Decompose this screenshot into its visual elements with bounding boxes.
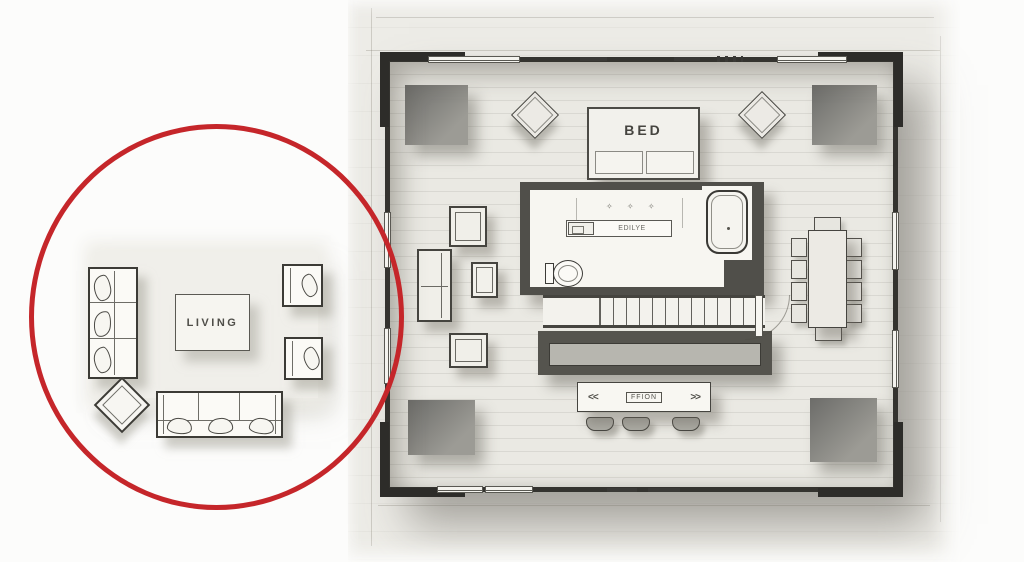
stairs [543, 295, 765, 328]
window-bottom-1 [437, 486, 483, 493]
dining-chair-bottom [815, 326, 842, 341]
toilet-bowl [553, 260, 583, 287]
plan-loveseat [417, 249, 452, 322]
long-sofa [538, 331, 772, 375]
island-arrow-right: >> [690, 392, 700, 403]
wall-bar-top-1 [580, 57, 607, 61]
guide-line-horizontal-top1 [376, 17, 934, 18]
dining-chair-left [791, 260, 807, 279]
wall-bar-bottom-2 [648, 488, 680, 492]
guide-line-vertical-right [940, 36, 941, 522]
bed-pillow [595, 151, 643, 174]
corner-wall-top-left [380, 52, 465, 127]
toilet [545, 260, 585, 287]
dining-chair-left [791, 238, 807, 257]
vanity-sparkles: ✧ ✧ ✧ [606, 202, 661, 211]
scene: BED ✧ ✧ ✧ EDILYE [0, 0, 1024, 562]
diamond-stool-left [511, 91, 559, 139]
wall-bar-top-2 [674, 57, 700, 61]
vanity-label: EDILYE [618, 225, 645, 232]
bathtub [706, 190, 748, 254]
guide-line-horizontal-bottom [378, 505, 930, 506]
bar-stool [586, 417, 614, 431]
dining-chair-left [791, 282, 807, 301]
dining-chair-right [846, 304, 862, 323]
corner-wall-bottom-right [818, 422, 903, 497]
window-top-1 [428, 56, 520, 63]
bathtub-alcove [702, 186, 752, 260]
wall-bar-bottom-1 [607, 488, 637, 492]
dining-chair-right [846, 238, 862, 257]
red-highlight-circle [29, 124, 404, 510]
door-leaf [755, 295, 763, 337]
bed-label: BED [589, 122, 698, 138]
dining-chair-top [814, 217, 841, 231]
diamond-stool-right [738, 91, 786, 139]
bathroom-core: ✧ ✧ ✧ EDILYE [520, 182, 764, 295]
sink [568, 222, 594, 235]
cabinet-line [682, 198, 683, 228]
dining-chair-right [846, 260, 862, 279]
island-arrow-left: << [588, 392, 598, 403]
corner-wall-top-right [818, 52, 903, 127]
plan-side-table [471, 262, 498, 298]
dining-chair-left [791, 304, 807, 323]
bed-pillow [646, 151, 694, 174]
window-right-1 [892, 212, 899, 270]
dining-chair-right [846, 282, 862, 301]
window-top-2 [777, 56, 847, 63]
guide-line-horizontal-top2 [366, 50, 940, 51]
floor-plan: BED ✧ ✧ ✧ EDILYE [385, 57, 898, 492]
bed: BED [587, 107, 700, 180]
plan-armchair-bottom [449, 333, 488, 368]
bar-stool [672, 417, 700, 431]
bar-stool [622, 417, 650, 431]
window-right-2 [892, 330, 899, 388]
kitchen-island: << FFION >> [577, 382, 711, 412]
plan-armchair-top [449, 206, 487, 247]
island-label: FFION [626, 392, 662, 403]
sketch-paper: BED ✧ ✧ ✧ EDILYE [348, 0, 960, 562]
window-bottom-2 [485, 486, 533, 493]
dining-table [808, 230, 847, 328]
wall-ticks-top [717, 56, 743, 62]
